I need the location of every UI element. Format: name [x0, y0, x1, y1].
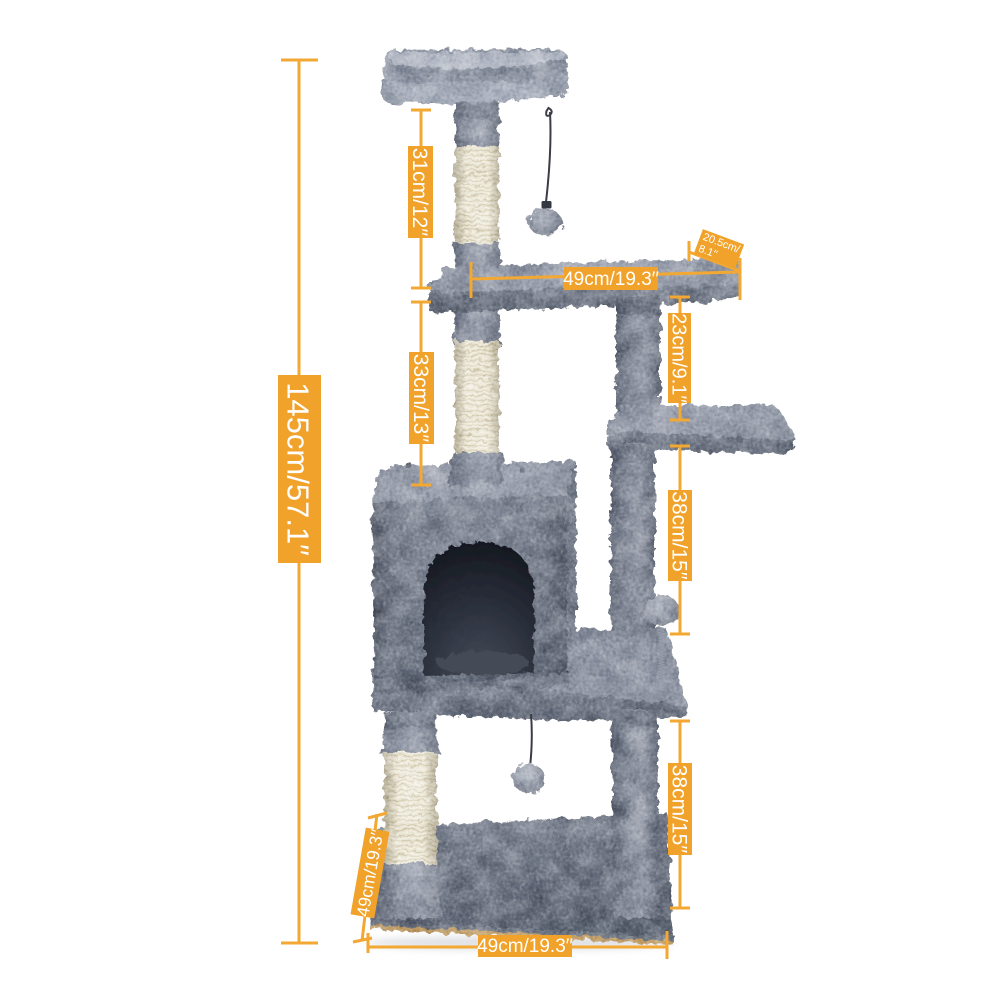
svg-text:49cm/19.3′′: 49cm/19.3′′ — [477, 936, 573, 957]
svg-text:38cm/15′′: 38cm/15′′ — [668, 491, 691, 579]
svg-text:38cm/15′′: 38cm/15′′ — [668, 765, 691, 853]
svg-text:145cm/57.1′′: 145cm/57.1′′ — [281, 382, 316, 556]
svg-text:23cm/9.1′′: 23cm/9.1′′ — [668, 313, 690, 403]
svg-text:31cm/12′′: 31cm/12′′ — [408, 148, 431, 236]
svg-text:49cm/19.3′′: 49cm/19.3′′ — [563, 269, 659, 290]
svg-text:33cm/13′′: 33cm/13′′ — [409, 354, 432, 442]
